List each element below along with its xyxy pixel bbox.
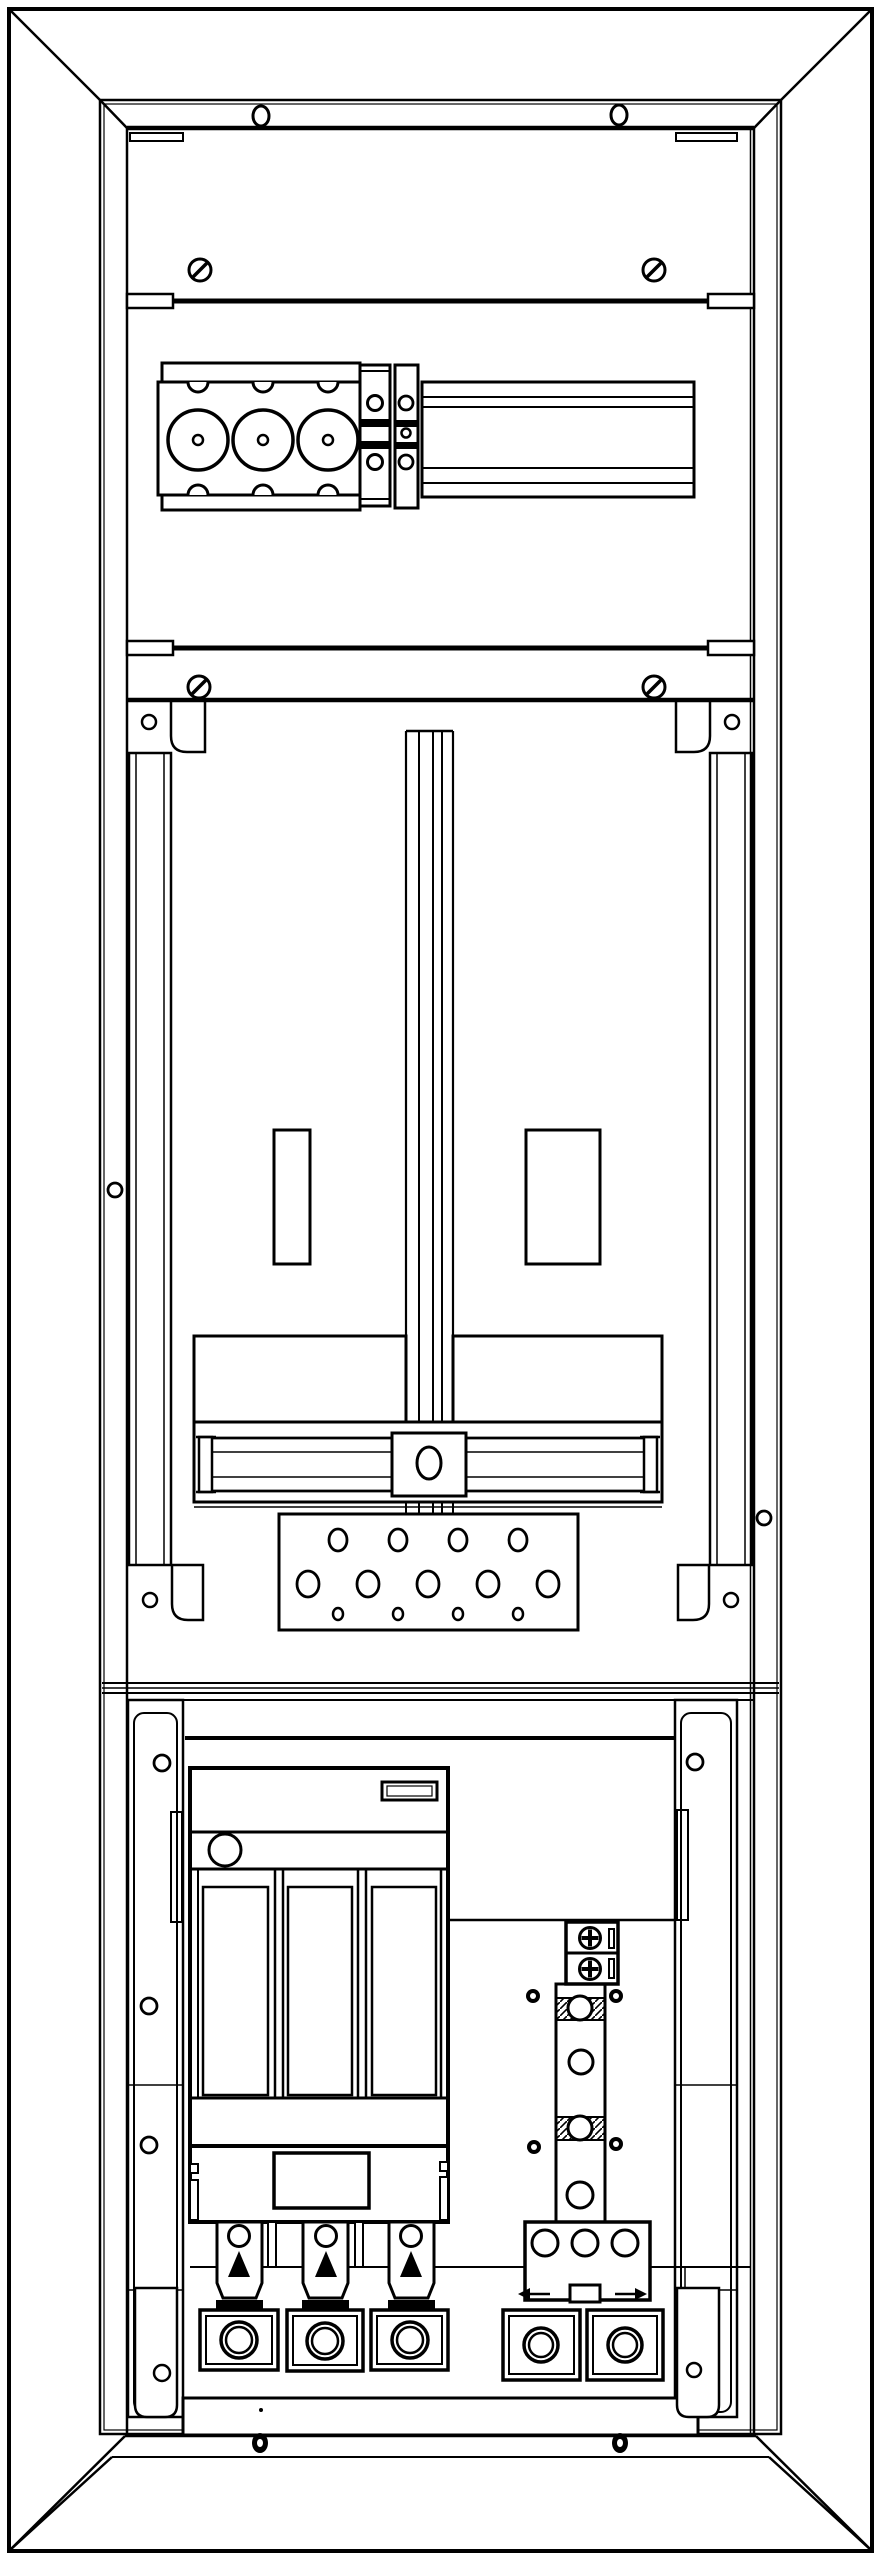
crossbar-center-block (392, 1433, 466, 1496)
upright-hole-icon (687, 1754, 703, 1770)
neutral-terminal (503, 2310, 580, 2380)
n-pe-busbar (518, 1922, 650, 2302)
upright-hole-icon (154, 1755, 170, 1771)
meter-mounting-plate-left (194, 1336, 406, 1422)
bracket-hole-icon (143, 1593, 157, 1607)
top-latch-tabs (130, 133, 737, 141)
busbar-connector-column-a (360, 365, 390, 506)
fuse-pull-handle-icon (388, 2222, 435, 2316)
busbar-hole-icon (569, 2050, 593, 2074)
busbar-hole-icon (567, 2182, 593, 2208)
washer-screw-icon (609, 2137, 623, 2151)
upright-hole-icon (141, 1998, 157, 2014)
top-face-screw-holes (253, 105, 627, 126)
bracket-hole-icon (142, 715, 156, 729)
phillips-screw-icon (580, 1928, 601, 1949)
section-divider-band (102, 1683, 779, 1700)
neutral-terminal (587, 2310, 663, 2380)
slotted-screws-row2 (188, 676, 665, 698)
screw-hole-icon (253, 106, 269, 126)
cabinet-drawing: Meter cabinet enclosure – front view lin… (0, 0, 881, 2560)
slotted-screw-icon (188, 676, 210, 698)
corner-bracket-mid-bottom-left (143, 1565, 203, 1620)
nh-fuse-switch (190, 1768, 448, 2222)
busbar-connector-column-b (395, 365, 418, 508)
n-pe-bottom-block (518, 2222, 650, 2302)
phase-terminals (200, 2310, 448, 2371)
washer-screw-icon (527, 2140, 541, 2154)
phillips-screw-icon (580, 1959, 601, 1980)
meter-window-right (526, 1130, 600, 1264)
panel-divider-rail-bottom (127, 641, 754, 655)
drawing-canvas: Meter cabinet enclosure – front view lin… (0, 0, 881, 2560)
switch-knob-icon (209, 1834, 241, 1866)
washer-screw-icon (612, 2433, 628, 2453)
screw-hole-icon (611, 105, 627, 125)
crossbar-end-stop-left (196, 1437, 216, 1492)
corner-bracket-top-right (676, 701, 739, 752)
neutral-terminals (503, 2310, 663, 2380)
meter-window-left (274, 1130, 310, 1264)
meter-mounting-rail-center (406, 731, 453, 1514)
slotted-screw-icon (643, 259, 665, 281)
corner-bracket-top-left (142, 701, 205, 752)
corner-bracket-mid-bottom-right (678, 1565, 738, 1620)
upright-hole-icon (141, 2137, 157, 2153)
bottom-bracket-left (135, 2288, 177, 2417)
side-screw-hole-left (108, 1183, 122, 1197)
vertical-rail-left (129, 753, 171, 1565)
phase-terminal (287, 2310, 363, 2371)
phase-terminal (371, 2310, 448, 2370)
fuse-carrier (203, 1887, 268, 2095)
perforated-gland-plate (279, 1514, 578, 1630)
panel-divider-rail-top (127, 294, 754, 308)
din-rail-horizontal (422, 382, 694, 497)
side-screw-hole-right (757, 1511, 771, 1525)
slotted-screw-icon (189, 259, 211, 281)
slotted-screw-icon (643, 676, 665, 698)
washer-screw-icon (252, 2433, 268, 2453)
sliding-crossbar (194, 1422, 662, 1507)
phase-terminal (200, 2310, 278, 2370)
fuse-switch-label-window (382, 1782, 437, 1800)
busbar-terminal-block (158, 363, 360, 510)
bracket-hole-icon (724, 1593, 738, 1607)
fuse-carrier (372, 1887, 436, 2095)
fuse-pull-handle-icon (302, 2222, 349, 2316)
vertical-rail-right (710, 753, 752, 1565)
fuse-switch-label-plate (274, 2153, 369, 2208)
bracket-hole-icon (154, 2365, 170, 2381)
bracket-hole-icon (687, 2363, 701, 2377)
fuse-pull-handles (216, 2222, 435, 2316)
crossbar-end-stop-right (640, 1437, 660, 1492)
crossbar-hole-icon (417, 1447, 441, 1479)
washer-screw-icon (526, 1989, 540, 2003)
bottom-bracket-right (677, 2288, 719, 2417)
fuse-carrier (288, 1887, 352, 2095)
washer-screw-icon (609, 1989, 623, 2003)
bracket-hole-icon (725, 715, 739, 729)
bottom-rail (183, 2398, 698, 2435)
meter-mounting-plate-right (453, 1336, 662, 1422)
slotted-screws-row1 (189, 259, 665, 281)
phillips-terminal-block (566, 1922, 618, 1984)
